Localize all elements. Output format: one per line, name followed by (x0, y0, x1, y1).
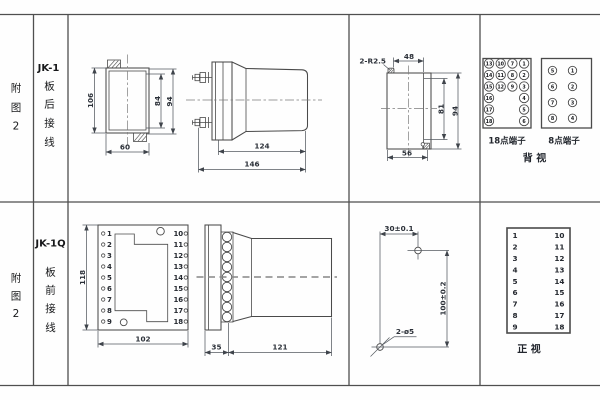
terminal-number: 17 (486, 107, 493, 113)
fig-char: 2 (13, 121, 20, 133)
dim-118: 118 (78, 270, 87, 285)
terminal-number: 2 (513, 242, 518, 251)
flange-plate (212, 62, 232, 140)
table-right-column: 10 11 12 13 14 15 16 17 18 (554, 231, 564, 332)
terminal-number: 14 (486, 73, 493, 79)
terminal-number: 12 (497, 84, 504, 90)
terminal-number: 11 (173, 241, 183, 249)
terminal-number: 10 (173, 230, 183, 238)
terminal-number: 4 (107, 263, 112, 271)
wiring-char: 板 (45, 266, 56, 279)
dim-81: 81 (436, 104, 445, 114)
terminal-number: 1 (571, 68, 574, 74)
radius-note: 2-R2.5 (359, 57, 386, 66)
terminal-number: 17 (173, 307, 183, 315)
mounting-tab-top (108, 60, 121, 68)
case-silhouette (115, 234, 168, 322)
row1-model-label: JK-1 板 后 接 线 (37, 63, 60, 149)
fig-char: 图 (11, 102, 22, 114)
dim-56: 56 (402, 148, 412, 157)
terminal-number: 1 (522, 61, 525, 67)
relay-dimension-diagram: 附 图 2 JK-1 板 后 接 线 106 (0, 0, 600, 400)
terminal-number: 8 (513, 311, 518, 320)
dim-84: 84 (153, 96, 162, 106)
terminal-number: 9 (107, 318, 112, 326)
drawing-sheet: 附 图 2 JK-1 板 后 接 线 106 (0, 0, 600, 400)
dim-121: 121 (272, 343, 287, 352)
fig-char: 附 (11, 272, 22, 285)
fig-char: 图 (11, 291, 22, 303)
dim-124: 124 (254, 142, 269, 151)
wiring-char: 前 (45, 284, 56, 297)
terminal-number: 1 (107, 230, 112, 238)
fig-char: 2 (13, 308, 20, 320)
terminal-number: 3 (571, 100, 574, 106)
terminal-number: 18 (486, 119, 493, 125)
jk1-front-view: 106 84 94 60 (86, 55, 177, 156)
jk1-side-view: 124 146 (186, 62, 322, 173)
terminal-number: 7 (513, 300, 518, 309)
dim-94: 94 (165, 96, 174, 106)
terminal-number: 1 (513, 231, 518, 240)
terminal-table-front-view: 1 2 3 4 5 6 7 8 9 10 11 12 13 14 15 16 1… (507, 228, 570, 356)
terminal-number: 5 (107, 274, 112, 282)
terminal-8pt-label: 8点端子 (548, 136, 580, 147)
front-view-label: 正 视 (517, 343, 540, 356)
terminal-number: 17 (554, 311, 564, 320)
dim-94-cutout: 94 (450, 106, 459, 116)
jk1-panel-cutout: 48 2-R2.5 81 94 56 (359, 52, 461, 161)
terminal-number: 6 (107, 285, 112, 293)
terminal-screw (193, 117, 213, 128)
terminal-number: 7 (511, 61, 514, 67)
wiring-char: 板 (44, 80, 55, 93)
row2-figure-label: 附 图 2 (11, 272, 22, 321)
terminal-number: 13 (486, 61, 493, 67)
terminal-8pt-back-view: 5 1 6 2 7 3 8 4 8点端子 (542, 59, 592, 147)
dim-30: 30±0.1 (384, 224, 413, 233)
terminal-number: 13 (554, 265, 564, 274)
terminal-number: 16 (173, 296, 183, 304)
cutout-outline (387, 73, 431, 149)
drilling-plan: 30±0.1 100±0.2 2-ø5 (371, 224, 450, 357)
terminal-number: 18 (554, 323, 564, 332)
terminal-number: 6 (513, 288, 518, 297)
left-terminals: 1 2 3 4 5 6 7 8 9 (102, 230, 113, 326)
terminal-number: 7 (107, 296, 112, 304)
terminal-number: 10 (497, 61, 504, 67)
wiring-char: 线 (45, 321, 56, 334)
terminal-number: 7 (551, 100, 554, 106)
terminal-number: 18 (173, 318, 183, 326)
mounting-hole (157, 227, 165, 235)
mounting-hole (120, 319, 127, 326)
terminal-number: 3 (522, 84, 525, 90)
terminal-number: 14 (554, 277, 564, 286)
terminal-number: 12 (554, 254, 564, 263)
terminal-number: 12 (173, 252, 183, 260)
jk1q-front-view: 1 2 3 4 5 6 7 8 9 10 11 12 13 14 15 16 1… (78, 225, 188, 348)
terminal-number: 9 (513, 323, 518, 332)
terminal-number: 8 (107, 307, 112, 315)
fig-char: 附 (11, 82, 22, 95)
wiring-char: 接 (44, 117, 55, 130)
terminal-screw (193, 72, 213, 83)
table-left-column: 1 2 3 4 5 6 7 8 9 (513, 231, 518, 332)
terminal-number: 15 (173, 285, 183, 293)
terminal-number: 3 (107, 252, 112, 260)
dim-48: 48 (404, 52, 414, 61)
dim-146: 146 (244, 160, 259, 169)
cutout-tab-bottom-right (421, 143, 429, 149)
terminal-number: 4 (513, 265, 518, 274)
terminal-18pt-label: 18点端子 (488, 136, 526, 147)
row2-model-label: JK-1Q 板 前 接 线 (34, 239, 65, 335)
row1-figure-label: 附 图 2 (11, 82, 22, 133)
dim-100: 100±0.2 (439, 281, 448, 315)
terminal-18pt-back-view: 13 10 7 1 14 11 8 2 15 12 9 3 16 4 17 5 … (483, 59, 531, 147)
model-name: JK-1Q (34, 239, 65, 250)
dim-60: 60 (120, 143, 130, 152)
wiring-char: 接 (45, 302, 56, 315)
terminal-number: 2 (522, 73, 525, 79)
terminal-number: 2 (571, 84, 574, 90)
terminal-number: 5 (551, 68, 554, 74)
mounting-tab-bottom (134, 133, 147, 142)
terminal-number: 11 (497, 73, 504, 79)
hole-diameter-note: 2-ø5 (396, 327, 414, 336)
right-terminals: 10 11 12 13 14 15 16 17 18 (173, 230, 187, 326)
terminal-number: 14 (173, 274, 183, 282)
terminal-number: 15 (554, 288, 564, 297)
jk1q-side-view: 35 121 (197, 225, 338, 356)
model-name: JK-1 (37, 63, 60, 74)
terminal-number: 11 (554, 242, 564, 251)
dim-102: 102 (135, 335, 150, 344)
terminal-number: 16 (554, 300, 564, 309)
terminal-number: 5 (513, 277, 518, 286)
dim-106: 106 (86, 93, 95, 108)
terminal-number: 3 (513, 254, 518, 263)
terminal-number: 10 (554, 231, 564, 240)
terminal-number: 2 (107, 241, 112, 249)
back-view-label: 背 视 (523, 152, 546, 165)
terminal-number: 16 (486, 96, 493, 102)
wiring-char: 线 (44, 136, 55, 149)
terminal-number: 15 (486, 84, 493, 90)
terminal-number: 5 (522, 107, 525, 113)
terminal-number: 13 (173, 263, 183, 271)
dim-35: 35 (211, 343, 221, 352)
wiring-char: 后 (44, 99, 55, 111)
